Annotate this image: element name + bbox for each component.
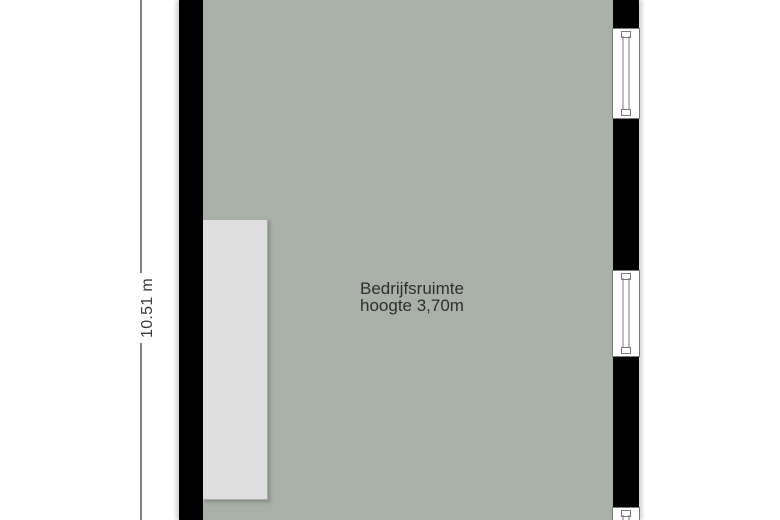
window-glass-line <box>623 515 630 520</box>
room-name: Bedrijfsruimte <box>360 280 464 297</box>
dimension-label: 10.51 m <box>139 278 157 338</box>
window-icon <box>612 28 640 119</box>
wall-left <box>179 0 203 520</box>
dimension-line-bottom <box>140 343 142 520</box>
window-glass-line <box>623 36 630 111</box>
floor-plan: 10.51 m Bedrijfsruimte hoogte 3,70m <box>0 0 780 520</box>
window-frame-cap <box>621 347 631 354</box>
room-label: Bedrijfsruimte hoogte 3,70m <box>360 280 464 314</box>
window-icon <box>612 270 640 357</box>
room-height-note: hoogte 3,70m <box>360 297 464 314</box>
dimension-line-top <box>140 0 142 273</box>
stairs-icon <box>203 219 268 500</box>
window-icon <box>612 507 640 520</box>
window-frame-cap <box>621 109 631 116</box>
window-glass-line <box>623 278 630 349</box>
room-bedrijfsruimte: Bedrijfsruimte hoogte 3,70m <box>203 0 613 520</box>
